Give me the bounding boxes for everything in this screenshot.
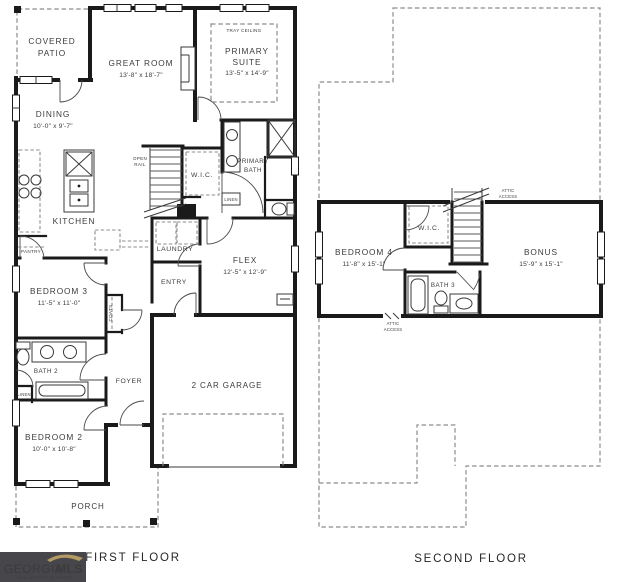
window-icon	[316, 232, 323, 257]
logo-text-mls: MLS	[56, 562, 83, 576]
room-label-kitchen: KITCHEN	[53, 216, 96, 226]
room-label-bath2: BATH 2	[34, 368, 58, 375]
garage-door	[163, 414, 283, 467]
room-label-flex: FLEX	[233, 255, 257, 265]
room-label-entry: ENTRY	[161, 279, 187, 286]
room-label-laundry: LAUNDRY	[157, 246, 194, 253]
floor-plan-page: COVERED PATIO GREAT ROOM 13'-8" x 18'-7"…	[0, 0, 617, 582]
room-label-primary-bath2: BATH	[244, 167, 262, 174]
vanity-sink-icon	[450, 294, 478, 313]
room-dims-dining: 10'-0" x 9'-7"	[33, 123, 73, 130]
second-floor-caption: SECOND FLOOR	[414, 553, 528, 565]
window-icon	[166, 5, 182, 12]
room-label-dining: DINING	[36, 109, 70, 119]
room-dims-flex: 12'-5" x 12'-9"	[223, 269, 267, 276]
window-icon	[598, 259, 605, 284]
label-open-rail: OPEN	[133, 156, 147, 161]
window-icon	[104, 5, 131, 12]
porch-outline	[13, 468, 158, 527]
windows-second-floor	[316, 232, 605, 284]
window-icon	[13, 400, 20, 426]
window-icon	[26, 481, 50, 488]
washer-dryer-icons	[156, 222, 197, 244]
room-label-pantry: PANTRY	[21, 249, 41, 254]
window-icon	[20, 77, 52, 84]
room-label-bonus: BONUS	[524, 247, 558, 257]
room-label-covered-patio: COVERED	[28, 36, 75, 46]
label-tray-ceiling: TRAY CEILING	[226, 28, 261, 33]
window-icon	[135, 5, 156, 12]
room-label-bath3: BATH 3	[431, 282, 455, 289]
tub-icon	[36, 382, 88, 399]
first-floor-plan: COVERED PATIO GREAT ROOM 13'-8" x 18'-7"…	[13, 5, 299, 565]
room-label-primary-suite: PRIMARY	[225, 46, 269, 56]
fireplace-niche	[181, 47, 195, 90]
room-label-bedroom3: BEDROOM 3	[30, 286, 88, 296]
window-icon	[316, 259, 323, 284]
label-attic-access-top2: ACCESS	[499, 194, 517, 199]
floor-plan-drawing: COVERED PATIO GREAT ROOM 13'-8" x 18'-7"…	[0, 0, 617, 582]
window-icon	[54, 481, 78, 488]
window-icon	[13, 266, 20, 292]
logo-text-georgia: GEORGIA	[4, 562, 64, 576]
room-label-primary-suite2: SUITE	[233, 57, 262, 67]
tub-icon	[408, 276, 428, 314]
room-dims-primary-suite: 13'-5" x 14'-9"	[225, 70, 269, 77]
label-attic-access-top: ATTIC	[502, 188, 515, 193]
first-floor-caption: FIRST FLOOR	[85, 552, 181, 564]
room-label-foyer: FOYER	[116, 378, 142, 385]
window-icon	[220, 5, 243, 12]
room-dims-bedroom2: 10'-0" x 10'-8"	[32, 446, 76, 453]
utility-box	[277, 294, 293, 305]
window-icon	[246, 5, 269, 12]
room-label-bedroom2: BEDROOM 2	[25, 432, 83, 442]
room-label-bedroom4: BEDROOM 4	[335, 247, 393, 257]
kitchen-island	[64, 150, 94, 212]
window-icon	[292, 157, 299, 175]
georgia-mls-logo: GEORGIA MLS REAL ESTATE SERVICES	[0, 552, 86, 582]
attic-hatch	[383, 312, 401, 320]
label-linen2: LINEN	[17, 392, 30, 397]
window-icon	[598, 232, 605, 257]
toilet-icon	[434, 291, 448, 313]
label-linen: LINEN	[224, 197, 237, 202]
label-attic-access-bottom2: ACCESS	[384, 327, 402, 332]
shower-icon	[268, 120, 295, 157]
room-label-covered-patio2: PATIO	[38, 48, 66, 58]
room-dims-great-room: 13'-8" x 18'-7"	[119, 72, 163, 79]
room-dims-bedroom3: 11'-5" x 11'-0"	[38, 300, 81, 307]
room-label-porch: PORCH	[71, 502, 104, 511]
exterior-walls	[16, 8, 295, 484]
second-floor-plan: ATTIC ACCESS W.I.C. BEDROOM 4 11'-8" x 1…	[316, 8, 605, 565]
toilet-icon	[272, 203, 294, 215]
room-label-great-room: GREAT ROOM	[109, 58, 174, 68]
window-icon	[13, 95, 20, 121]
window-icon	[292, 246, 299, 272]
room-label-garage: 2 CAR GARAGE	[192, 381, 263, 390]
room-label-primary-bath: PRIMARY	[237, 158, 269, 165]
room-label-wic2: W.I.C.	[418, 225, 440, 232]
room-dims-bonus: 15'-9" x 15'-1"	[519, 261, 563, 268]
label-attic-access-bottom: ATTIC	[387, 321, 400, 326]
room-dims-bedroom4: 11'-8" x 15'-1"	[342, 261, 386, 268]
label-open-rail2: RAIL	[134, 162, 146, 167]
toilet-icon	[16, 342, 30, 365]
room-label-coats: COATS	[108, 305, 113, 322]
room-label-wic: W.I.C.	[191, 172, 213, 179]
logo-tagline: REAL ESTATE SERVICES	[17, 576, 72, 580]
